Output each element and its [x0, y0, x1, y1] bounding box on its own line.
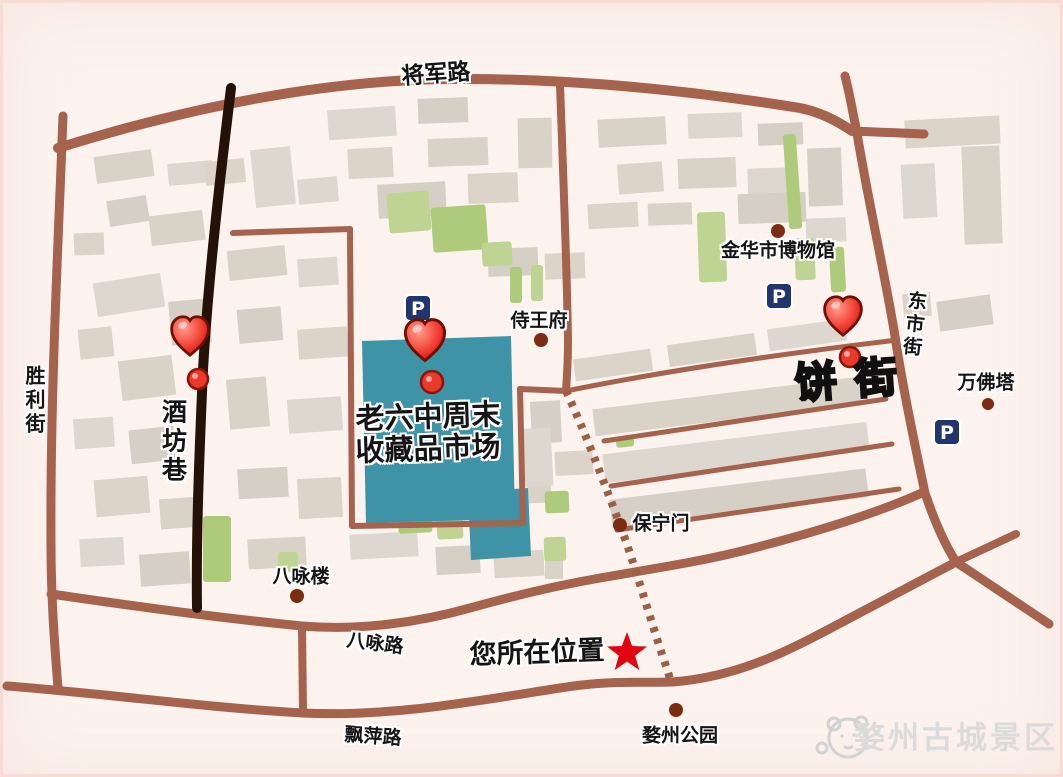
green-area — [278, 552, 298, 572]
building — [93, 273, 165, 317]
mascot-logo-icon — [817, 717, 867, 757]
building — [428, 137, 489, 167]
green-area — [794, 238, 815, 281]
road-shengli-street — [51, 116, 63, 688]
building — [139, 551, 191, 586]
building — [237, 306, 284, 344]
bing-street-pin — [840, 347, 860, 367]
road-northeast-branch — [956, 534, 1016, 562]
parking-icon-east: P — [934, 419, 960, 445]
building — [297, 477, 343, 519]
tourist-map: PPP 将军路 胜利街 酒坊巷 侍王府 金华市博物馆 东市街 万佛塔 饼街 保宁… — [0, 0, 1063, 777]
green-area — [697, 212, 727, 283]
building — [523, 427, 554, 486]
building — [93, 149, 154, 184]
green-area — [531, 265, 543, 301]
building — [148, 210, 205, 246]
building — [347, 147, 394, 179]
road-jiangjun-road-stub — [852, 131, 924, 134]
building — [297, 257, 339, 288]
building — [327, 106, 397, 141]
road-southeast-branch — [956, 562, 1049, 624]
building — [349, 531, 418, 560]
road-mid-vertical-road — [560, 84, 568, 391]
building — [467, 172, 518, 204]
wuzhou-park-dot — [669, 703, 683, 717]
building — [73, 417, 115, 450]
green-area — [203, 516, 231, 582]
building — [936, 294, 994, 331]
building — [227, 245, 288, 281]
road-market-outline-link — [520, 389, 566, 391]
building — [617, 161, 664, 194]
building — [961, 145, 1002, 244]
green-area — [510, 267, 522, 303]
building — [79, 537, 124, 567]
road-market-outline-right — [520, 389, 523, 523]
building — [250, 146, 296, 208]
building — [901, 163, 938, 219]
museum-dot — [771, 224, 785, 238]
green-area — [544, 537, 567, 562]
parking-letter: P — [940, 422, 954, 444]
building — [902, 292, 932, 318]
map-graphics: PPP — [0, 0, 1063, 777]
building — [418, 97, 469, 124]
green-area — [829, 247, 846, 293]
market-pin — [421, 371, 443, 393]
building — [226, 376, 270, 429]
building — [587, 202, 638, 230]
shiwangfu-dot — [534, 333, 548, 347]
road-market-outline-top — [233, 229, 350, 233]
building — [758, 122, 804, 146]
building — [597, 116, 666, 148]
building — [297, 326, 349, 359]
building — [554, 450, 593, 476]
road-market-outline-left — [350, 229, 352, 526]
building — [545, 559, 563, 579]
building — [688, 112, 743, 139]
building — [237, 467, 289, 500]
parking-icon-market: P — [405, 295, 431, 321]
parking-letter: P — [772, 286, 786, 308]
building — [118, 355, 176, 401]
green-area — [481, 241, 512, 267]
wanfo-tower-dot — [982, 398, 994, 410]
green-area — [430, 204, 488, 253]
green-area — [545, 491, 570, 514]
bayong-tower-dot — [290, 589, 304, 603]
building — [807, 147, 843, 206]
current-location-star-icon — [607, 632, 647, 670]
building — [106, 195, 150, 227]
building — [74, 232, 105, 255]
parking-letter: P — [411, 298, 425, 320]
building — [518, 118, 553, 169]
road-market-outline-bottom — [352, 523, 523, 526]
baoning-gate-dot — [613, 518, 627, 532]
building — [78, 326, 115, 359]
road-cross-connector — [302, 626, 303, 713]
building — [677, 157, 736, 189]
parking-icon-museum: P — [766, 283, 792, 309]
building — [93, 476, 150, 518]
building — [128, 426, 176, 465]
building — [648, 202, 693, 226]
building — [287, 396, 343, 434]
jiufang-lane-pin — [188, 369, 208, 389]
building — [297, 176, 339, 204]
green-area — [386, 190, 431, 234]
